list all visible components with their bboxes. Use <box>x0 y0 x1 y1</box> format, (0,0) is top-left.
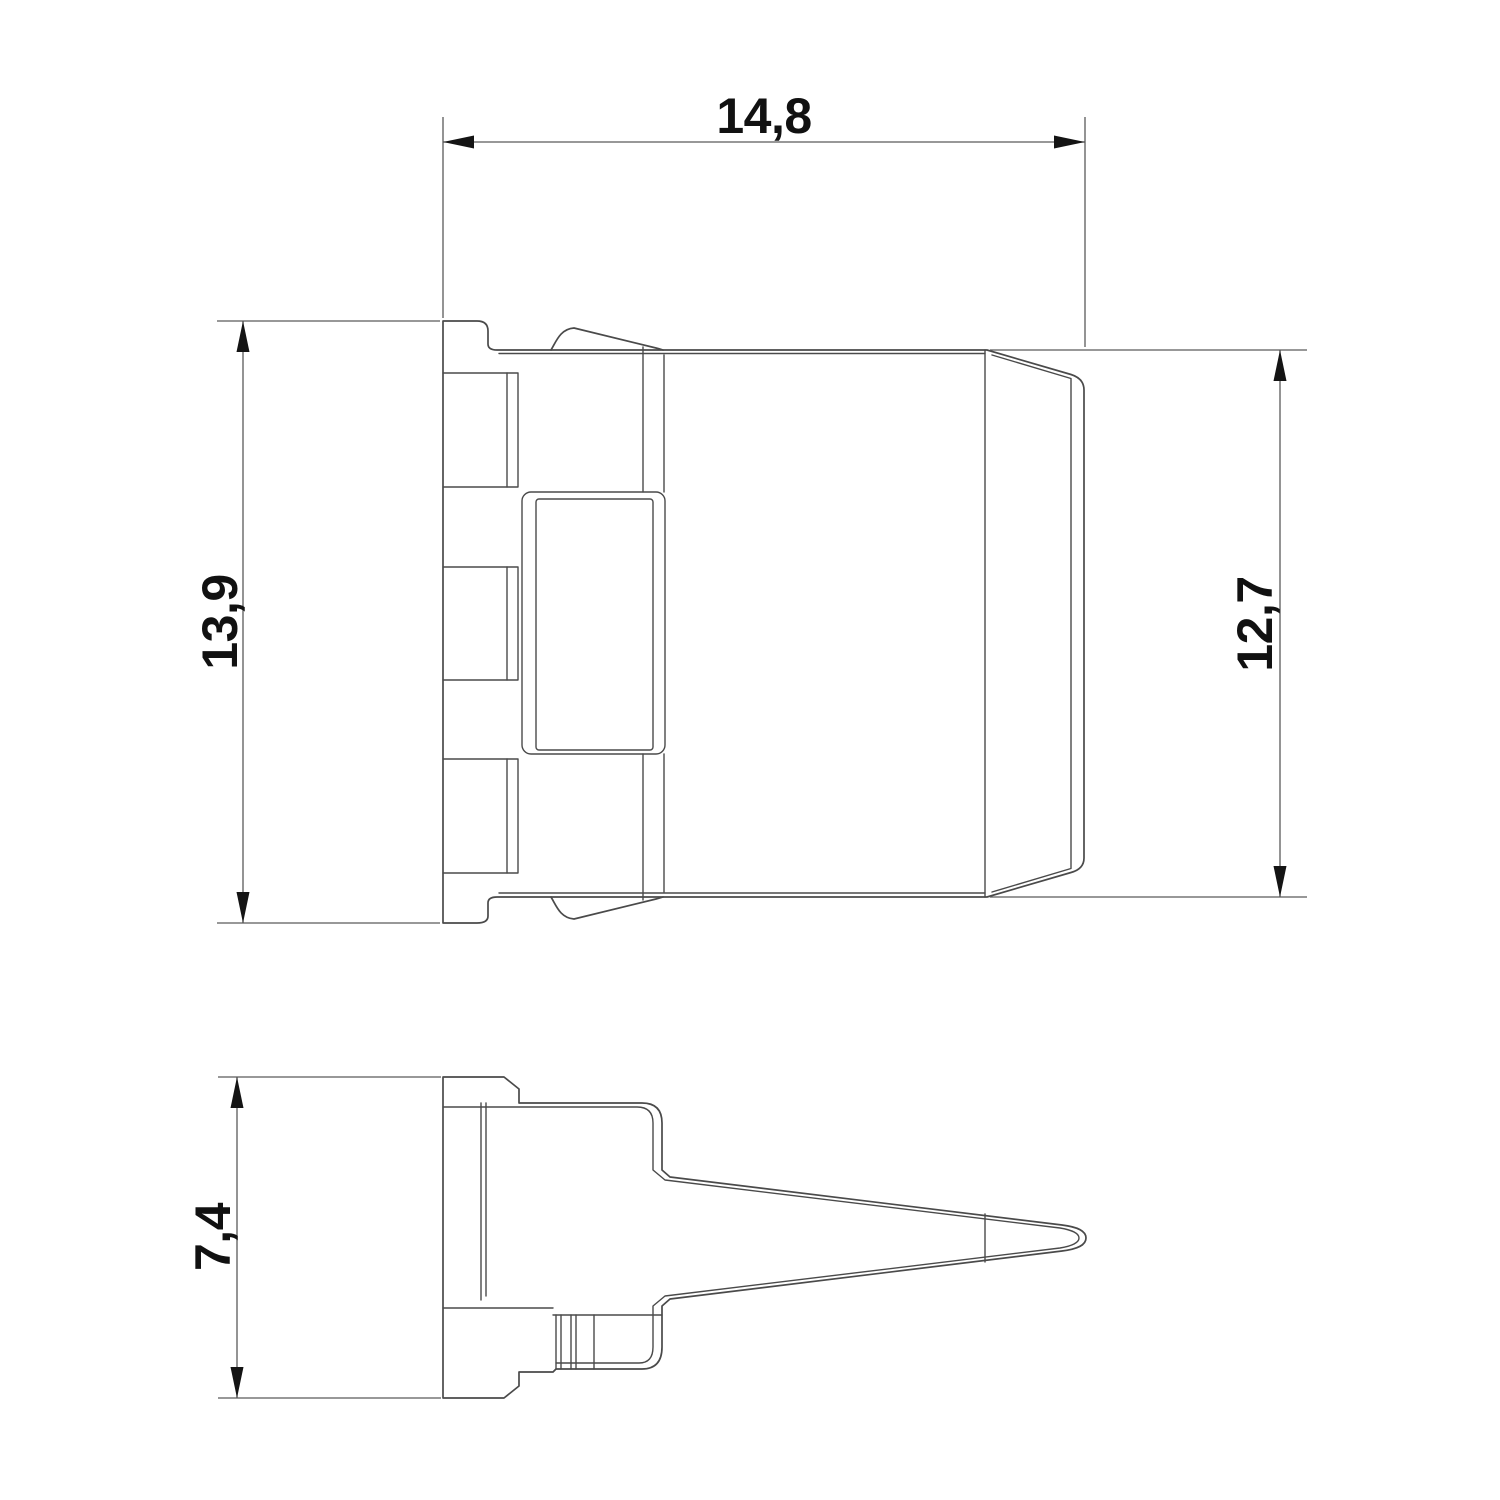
arrowhead-up <box>237 321 250 352</box>
arrowhead-right <box>1054 136 1085 149</box>
dimension-depth-left: 7,4 <box>185 1077 441 1398</box>
collar-inner <box>536 499 653 750</box>
side-view <box>443 321 1084 923</box>
arrowhead-left <box>443 136 474 149</box>
arrowhead-up <box>231 1077 244 1108</box>
arrowhead-down <box>231 1367 244 1398</box>
dimension-height-left: 13,9 <box>192 321 440 923</box>
dimension-height-right: 12,7 <box>990 350 1307 897</box>
arrowhead-down <box>237 892 250 923</box>
plan-view-inner-wall <box>443 1107 1079 1363</box>
plan-view <box>443 1077 1086 1398</box>
drawing-sheet: 14,8 13,9 12,7 7,4 <box>0 0 1500 1500</box>
arrowhead-up <box>1274 350 1287 381</box>
technical-drawing: 14,8 13,9 12,7 7,4 <box>0 0 1500 1500</box>
dimension-label-width: 14,8 <box>716 88 811 144</box>
side-view-outline <box>443 321 1084 923</box>
plan-view-outline <box>443 1077 1086 1398</box>
side-view-latch-bottom <box>551 897 663 919</box>
dimensions: 14,8 13,9 12,7 7,4 <box>185 88 1307 1398</box>
arrowhead-down <box>1274 866 1287 897</box>
side-view-front-chamfer-inner <box>992 355 1071 892</box>
dimension-label-height-left: 13,9 <box>192 574 248 669</box>
dimension-label-height-right: 12,7 <box>1227 576 1283 671</box>
latch-rib-lines <box>556 1315 594 1369</box>
dimension-width-top: 14,8 <box>443 88 1085 347</box>
dimension-label-depth: 7,4 <box>185 1202 241 1271</box>
side-view-latch-top <box>551 328 663 350</box>
collar-outer <box>522 492 665 754</box>
